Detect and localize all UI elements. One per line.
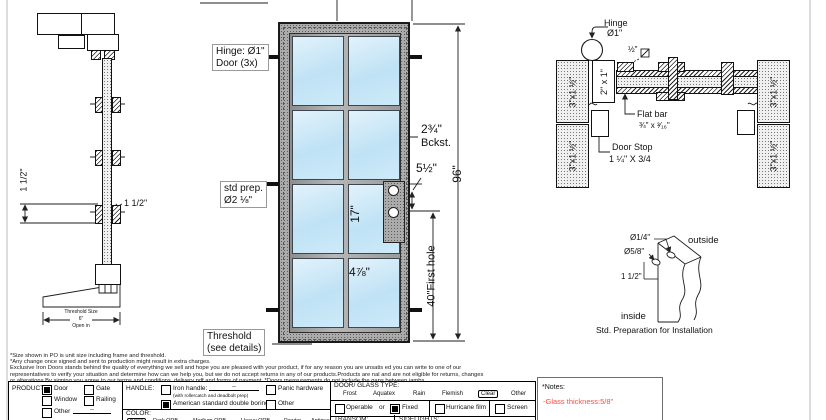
handle-cell: HANDLE: Iron handle: -- (with rollercatc…: [122, 381, 332, 411]
threshold-line1: Threshold: [207, 331, 261, 343]
glass-option[interactable]: Frost: [343, 391, 357, 397]
leaf-face-hatch-bottom: [616, 87, 758, 94]
dim-height-96: 96": [443, 168, 471, 180]
leaf-mullion: [668, 57, 678, 100]
hinge-lug: [95, 205, 103, 224]
checkbox-panic-hardware[interactable]: [266, 385, 276, 395]
dim-first-hole: 40"First hole: [395, 270, 469, 282]
detail-dia-quarter: Ø1/4": [630, 234, 650, 242]
option-hurricane-film: Hurricane film: [446, 405, 486, 412]
glass-pane: [348, 110, 400, 180]
hinge-stub: [409, 308, 422, 312]
std-prep-line2: Ø2 ⅛": [224, 195, 263, 207]
detail-dia-58: Ø5/8": [624, 248, 644, 256]
jamb-section: 3"x1 ½": [757, 124, 790, 188]
notes-line: representatives to verify your situation…: [10, 372, 483, 378]
door-section-bar: [102, 58, 112, 268]
head-profile-a: [37, 13, 82, 35]
hinge-callout-line2: Door (3x): [216, 58, 265, 70]
glass-option[interactable]: Flemish: [442, 391, 463, 397]
door-stop-section: [591, 110, 609, 137]
notes-line: Exclusive Iron Doors stands behind the q…: [10, 365, 483, 371]
checkbox-product-other[interactable]: [42, 408, 52, 418]
checkbox-railing[interactable]: [84, 396, 94, 406]
glass-type-cell: DOOR/ GLASS TYPE: Frost Aquatex Rain Fle…: [330, 381, 536, 420]
threshold-callout: Threshold (see details): [203, 329, 265, 356]
option-screen: Screen: [507, 405, 528, 412]
hinge-lug: [112, 97, 121, 113]
glass-pane: [292, 184, 344, 254]
checkbox-iron-handle[interactable]: [161, 385, 171, 395]
product-cell: PRODUCT: Door Gate Window Railing Other …: [8, 381, 124, 420]
threshold-size-title: Threshold Size: [56, 310, 106, 315]
option-operable: Operable: [346, 405, 373, 412]
dim-four-seven-eighths: 4⅞": [349, 266, 370, 279]
glass-option[interactable]: Other: [511, 391, 526, 397]
flat-bar-label: Flat bar: [637, 110, 668, 119]
checkbox-screen[interactable]: [495, 404, 505, 414]
leaf-hatch-block: [617, 62, 634, 72]
mode-row: Operable or Fixed Hurricane film Screen: [331, 400, 535, 417]
half-square-label: ½": [628, 46, 638, 54]
head-profile-b: [81, 13, 115, 35]
detail-dim-1half: 1 1/2": [621, 273, 642, 281]
jamb-section: 3"x1 ½": [556, 60, 589, 123]
hinge-lug: [95, 150, 103, 166]
dim-1-1-2-front: 1 1/2": [124, 199, 147, 208]
shop-drawing-page: 1 1/2" 1 1/2" Threshold Size 6" Open in …: [0, 0, 826, 420]
iron-handle-field[interactable]: --: [209, 384, 259, 391]
head-profile-d: [87, 34, 119, 51]
detail-inside-label: inside: [621, 312, 646, 322]
flat-bar-size: ¾" x ³⁄₁₆": [639, 122, 670, 130]
form-notes-title: *Notes:: [542, 384, 565, 391]
mode-or: or: [379, 405, 385, 412]
option-panic-hardware: Panic hardware: [278, 386, 323, 393]
handle-label: HANDLE:: [126, 386, 154, 393]
hinge-callout-line1: Hinge: Ø1": [216, 46, 265, 58]
option-product-other: Other: [54, 409, 70, 416]
door-stop-label: Door Stop: [612, 143, 653, 152]
leaf-hatch-block: [721, 62, 734, 95]
hinge-callout: Hinge: Ø1" Door (3x): [212, 44, 269, 71]
checkbox-door[interactable]: [42, 385, 52, 395]
dim-1-1-2-side: 1 1/2": [4, 175, 44, 185]
hinge-stub: [266, 308, 279, 312]
dim-backset-label: Bckst.: [421, 138, 451, 150]
color-label: COLOR:: [126, 411, 151, 418]
option-railing: Railing: [96, 397, 116, 404]
notes-text: *Size shown in PO is unit size including…: [10, 353, 483, 384]
lock-hole-bottom: [388, 207, 399, 218]
install-detail-sketch: [644, 236, 701, 322]
glass-pane: [292, 36, 344, 106]
option-window: Window: [54, 397, 77, 404]
option-iron-handle: Iron handle:: [173, 386, 207, 393]
option-door: Door: [54, 386, 68, 393]
hinge-lug: [95, 97, 103, 113]
hinge-stub: [409, 55, 422, 59]
door-stop-size: 1 ¼" X 3/4: [609, 155, 651, 164]
glass-option[interactable]: Aquatex: [373, 391, 395, 397]
door-stop-section: [737, 110, 755, 135]
checkbox-gate[interactable]: [84, 385, 94, 395]
checkbox-operable[interactable]: [335, 404, 345, 414]
jamb-section: 3"x1 ½": [757, 60, 790, 123]
glass-option-clear[interactable]: Clear: [478, 390, 498, 398]
hinge-stile-section: 2" x 1": [592, 60, 615, 103]
hinge-stub: [266, 182, 279, 186]
glass-option[interactable]: Rain: [413, 391, 425, 397]
checkbox-window[interactable]: [42, 396, 52, 406]
bottom-rail-section: [95, 264, 121, 285]
divider: [489, 401, 490, 416]
notes-cell: *Notes: -Glass thickness:5/8": [537, 377, 663, 420]
hinge-lug: [112, 150, 121, 166]
detail-title: Std. Preparation for Installation: [596, 326, 713, 335]
dim-five-half: 5½": [416, 162, 437, 175]
hinge-lug: [112, 205, 121, 224]
std-prep-callout: std prep. Ø2 ⅛": [220, 181, 267, 208]
plan-hinge-dia: Ø1": [607, 29, 622, 38]
glass-pane: [348, 36, 400, 106]
option-fixed: Fixed: [402, 405, 418, 412]
head-profile-c: [58, 35, 85, 49]
option-handle-other: Other: [278, 401, 294, 408]
jamb-section: 3"x1 ½": [556, 124, 589, 188]
head-foot-1: [91, 50, 101, 60]
detail-outside-label: outside: [688, 236, 719, 246]
glass-pane: [292, 258, 344, 328]
checkbox-fixed[interactable]: [390, 404, 400, 414]
glass-type-label: DOOR/ GLASS TYPE:: [334, 383, 399, 390]
checkbox-hurricane-film[interactable]: [435, 404, 445, 414]
product-other-field[interactable]: --: [73, 407, 111, 414]
option-gate: Gate: [96, 386, 110, 393]
threshold-open-dir: Open in: [56, 324, 106, 329]
iron-handle-subnote: (with rollercatch and deadbolt prep): [173, 394, 248, 399]
std-prep-line1: std prep.: [224, 183, 263, 195]
product-label: PRODUCT:: [12, 386, 45, 393]
option-american-standard: American standard double boring: [173, 401, 269, 408]
divider: [429, 401, 430, 416]
glass-pane: [292, 110, 344, 180]
dim-backset: 2¾": [421, 123, 442, 136]
threshold-size-value: 6": [56, 317, 106, 322]
glass-thickness-note: -Glass thickness:5/8": [543, 398, 613, 406]
divider: [394, 415, 395, 420]
color-cell: COLOR: Black Dark ORB Medium ORB Heavy O…: [122, 409, 332, 420]
dim-17: 17": [342, 208, 368, 220]
lock-hole-top: [388, 185, 399, 196]
